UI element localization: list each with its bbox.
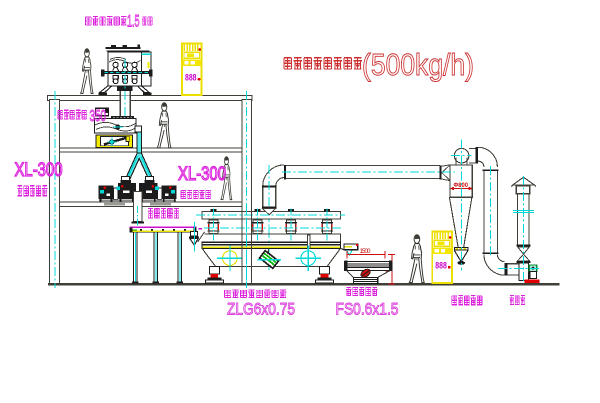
svg-text:350: 350 (90, 108, 107, 125)
svg-text:ZLG6x0.75: ZLG6x0.75 (227, 300, 295, 319)
svg-text:(500kg/h): (500kg/h) (362, 47, 474, 82)
svg-text:XL-300: XL-300 (15, 160, 63, 181)
svg-text:1500: 1500 (360, 248, 371, 255)
svg-text:FS0.6x1.5: FS0.6x1.5 (336, 300, 399, 319)
svg-text:1.5: 1.5 (127, 12, 140, 31)
svg-text:XL-300: XL-300 (178, 164, 226, 185)
svg-text:Φ800: Φ800 (454, 183, 469, 189)
